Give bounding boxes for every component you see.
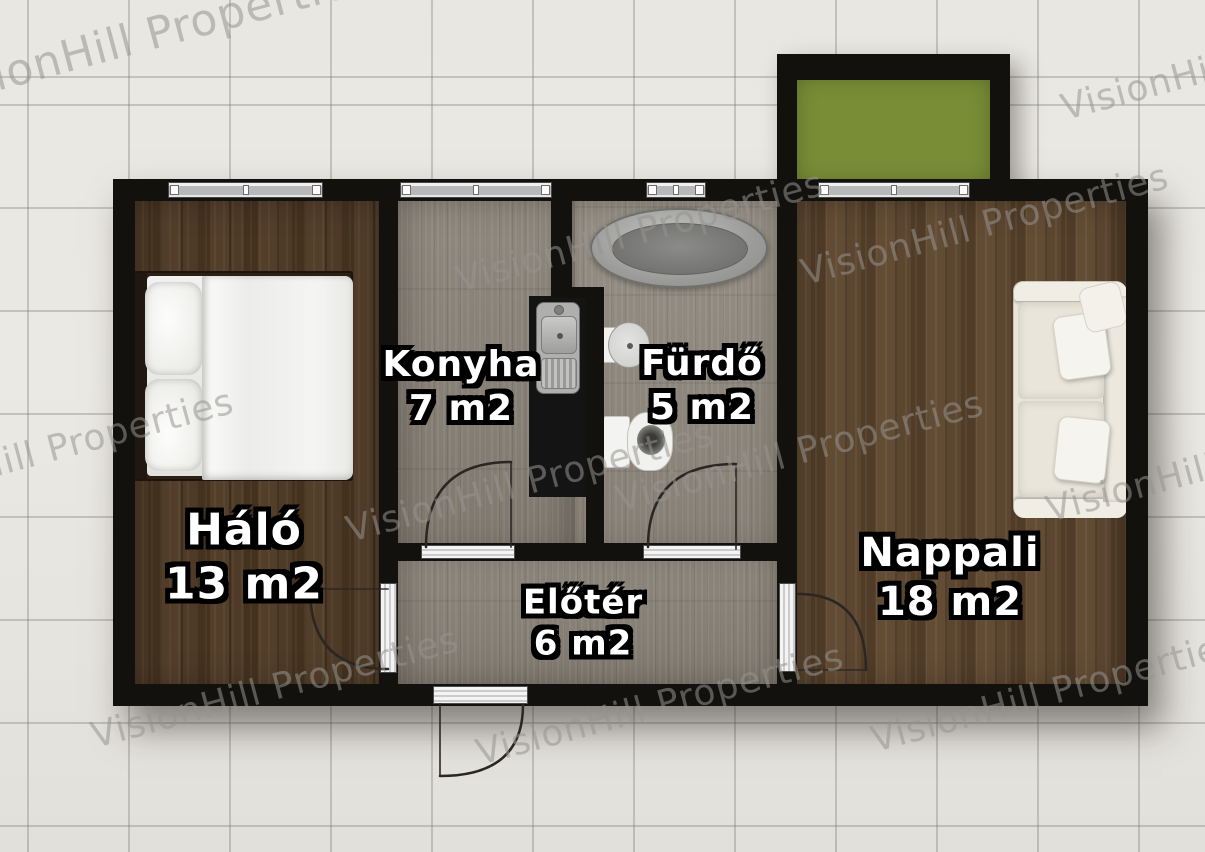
- room-label-furdo: Fürdő 5 m2: [641, 342, 763, 430]
- bed-pillow: [145, 282, 202, 375]
- room-name: Háló: [165, 503, 323, 557]
- room-area: 6 m2: [523, 624, 643, 665]
- balcony-grass: [795, 76, 992, 184]
- kitchen-sink: [536, 302, 580, 394]
- wall-kitchen-bath-lower: [586, 297, 604, 544]
- bathroom-door-threshold: [643, 545, 741, 559]
- balcony-wall-right: [990, 54, 1010, 200]
- floorplan-image: VisionHill Properties VisionHill Propert…: [0, 0, 1205, 852]
- bed-duvet: [202, 276, 353, 480]
- wall-right: [1126, 179, 1148, 706]
- room-label-konyha: Konyha 7 m2: [382, 343, 539, 431]
- room-label-nappali: Nappali 18 m2: [860, 529, 1039, 627]
- faucet-icon: [554, 305, 564, 315]
- kitchen-door-threshold: [421, 545, 515, 559]
- room-name: Konyha: [382, 343, 539, 387]
- room-label-halo: Háló 13 m2: [165, 503, 323, 610]
- bedroom-window: [168, 182, 323, 198]
- sink-drainboard: [541, 358, 577, 389]
- balcony-wall-top: [777, 54, 1010, 80]
- room-area: 5 m2: [641, 386, 763, 430]
- room-label-eloter: Előtér 6 m2: [523, 583, 643, 666]
- balcony-window: [818, 182, 970, 198]
- washbasin-drain: [627, 343, 633, 349]
- room-area: 18 m2: [860, 578, 1039, 627]
- bed: [133, 271, 353, 481]
- kitchen-window: [400, 182, 552, 198]
- entrance-door-threshold: [433, 686, 528, 704]
- room-area: 7 m2: [382, 387, 539, 431]
- room-area: 13 m2: [165, 557, 323, 611]
- sink-bowl: [541, 316, 577, 354]
- room-name: Nappali: [860, 529, 1039, 578]
- room-name: Fürdő: [641, 342, 763, 386]
- sink-drain: [557, 333, 563, 339]
- room-name: Előtér: [523, 583, 643, 624]
